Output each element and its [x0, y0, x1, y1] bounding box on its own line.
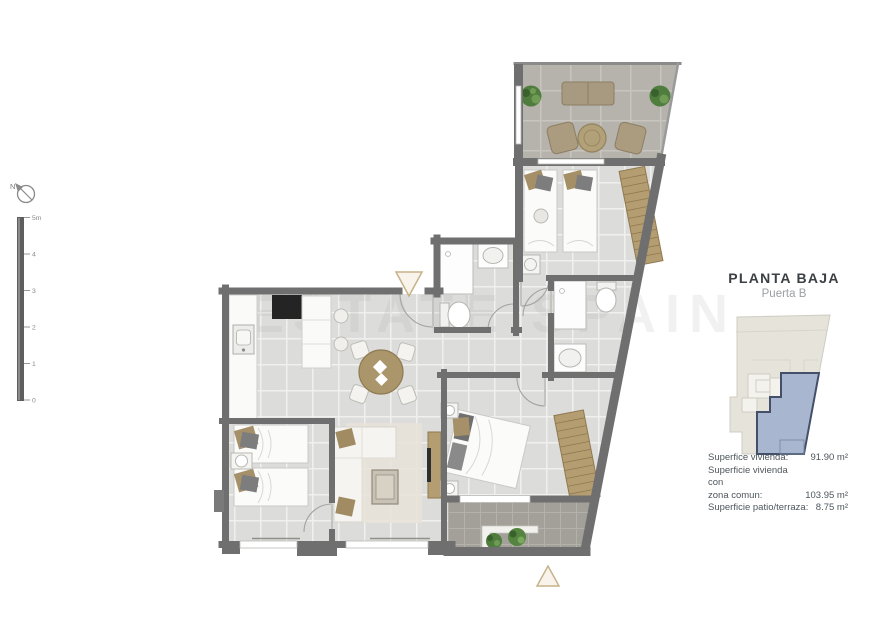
scale-bar: 5m 4 3 2 1 0	[17, 215, 42, 405]
compass-icon: N	[10, 182, 35, 203]
floorplan-page: N 5m 4 3 2 1 0 ESTATE SPAIN	[0, 0, 872, 623]
svg-text:N: N	[10, 182, 15, 191]
key-plan	[726, 308, 846, 460]
stool	[334, 337, 348, 351]
info-panel: PLANTA BAJA Puerta B	[700, 270, 868, 300]
measure-row: Superficie patio/terraza: 8.75 m²	[708, 502, 848, 515]
measure-row: Superficie vivienda con zona comun: 103.…	[708, 465, 848, 503]
pillow	[575, 175, 593, 192]
scale-label: 3	[32, 288, 36, 295]
plant-icon	[486, 533, 502, 549]
plant-icon	[650, 86, 671, 107]
scale-label: 4	[32, 252, 36, 259]
shower	[439, 244, 473, 294]
plan-title: PLANTA BAJA	[700, 270, 868, 286]
scale-label: 2	[32, 325, 36, 332]
outdoor-table	[578, 124, 606, 152]
plant-icon	[508, 528, 526, 546]
nightstand	[534, 209, 548, 223]
tv	[427, 448, 431, 482]
measure-row: Superfice vivienda: 91.90 m²	[708, 452, 848, 465]
window	[516, 86, 521, 144]
surface-measurements: Superfice vivienda: 91.90 m² Superficie …	[708, 452, 848, 515]
sliding-door	[538, 159, 604, 164]
plan-subtitle: Puerta B	[700, 288, 868, 300]
cooktop	[272, 295, 302, 319]
entrance-marker-bottom	[537, 566, 559, 586]
washing-machine	[521, 255, 540, 274]
window	[240, 541, 297, 548]
plant-icon	[521, 86, 542, 107]
scale-label: 1	[32, 361, 36, 368]
pillar	[214, 490, 224, 512]
pillow	[335, 497, 355, 517]
scale-label: 0	[32, 398, 36, 405]
window	[460, 496, 530, 503]
kitchen-island	[302, 296, 331, 368]
pillow	[453, 417, 471, 436]
shower	[554, 281, 586, 329]
pillow	[240, 432, 259, 450]
window	[346, 541, 428, 548]
lamp	[236, 455, 248, 467]
pillow	[240, 475, 259, 493]
stool	[334, 309, 348, 323]
kitchen-counter	[229, 295, 257, 419]
scale-label: 5m	[32, 215, 42, 222]
